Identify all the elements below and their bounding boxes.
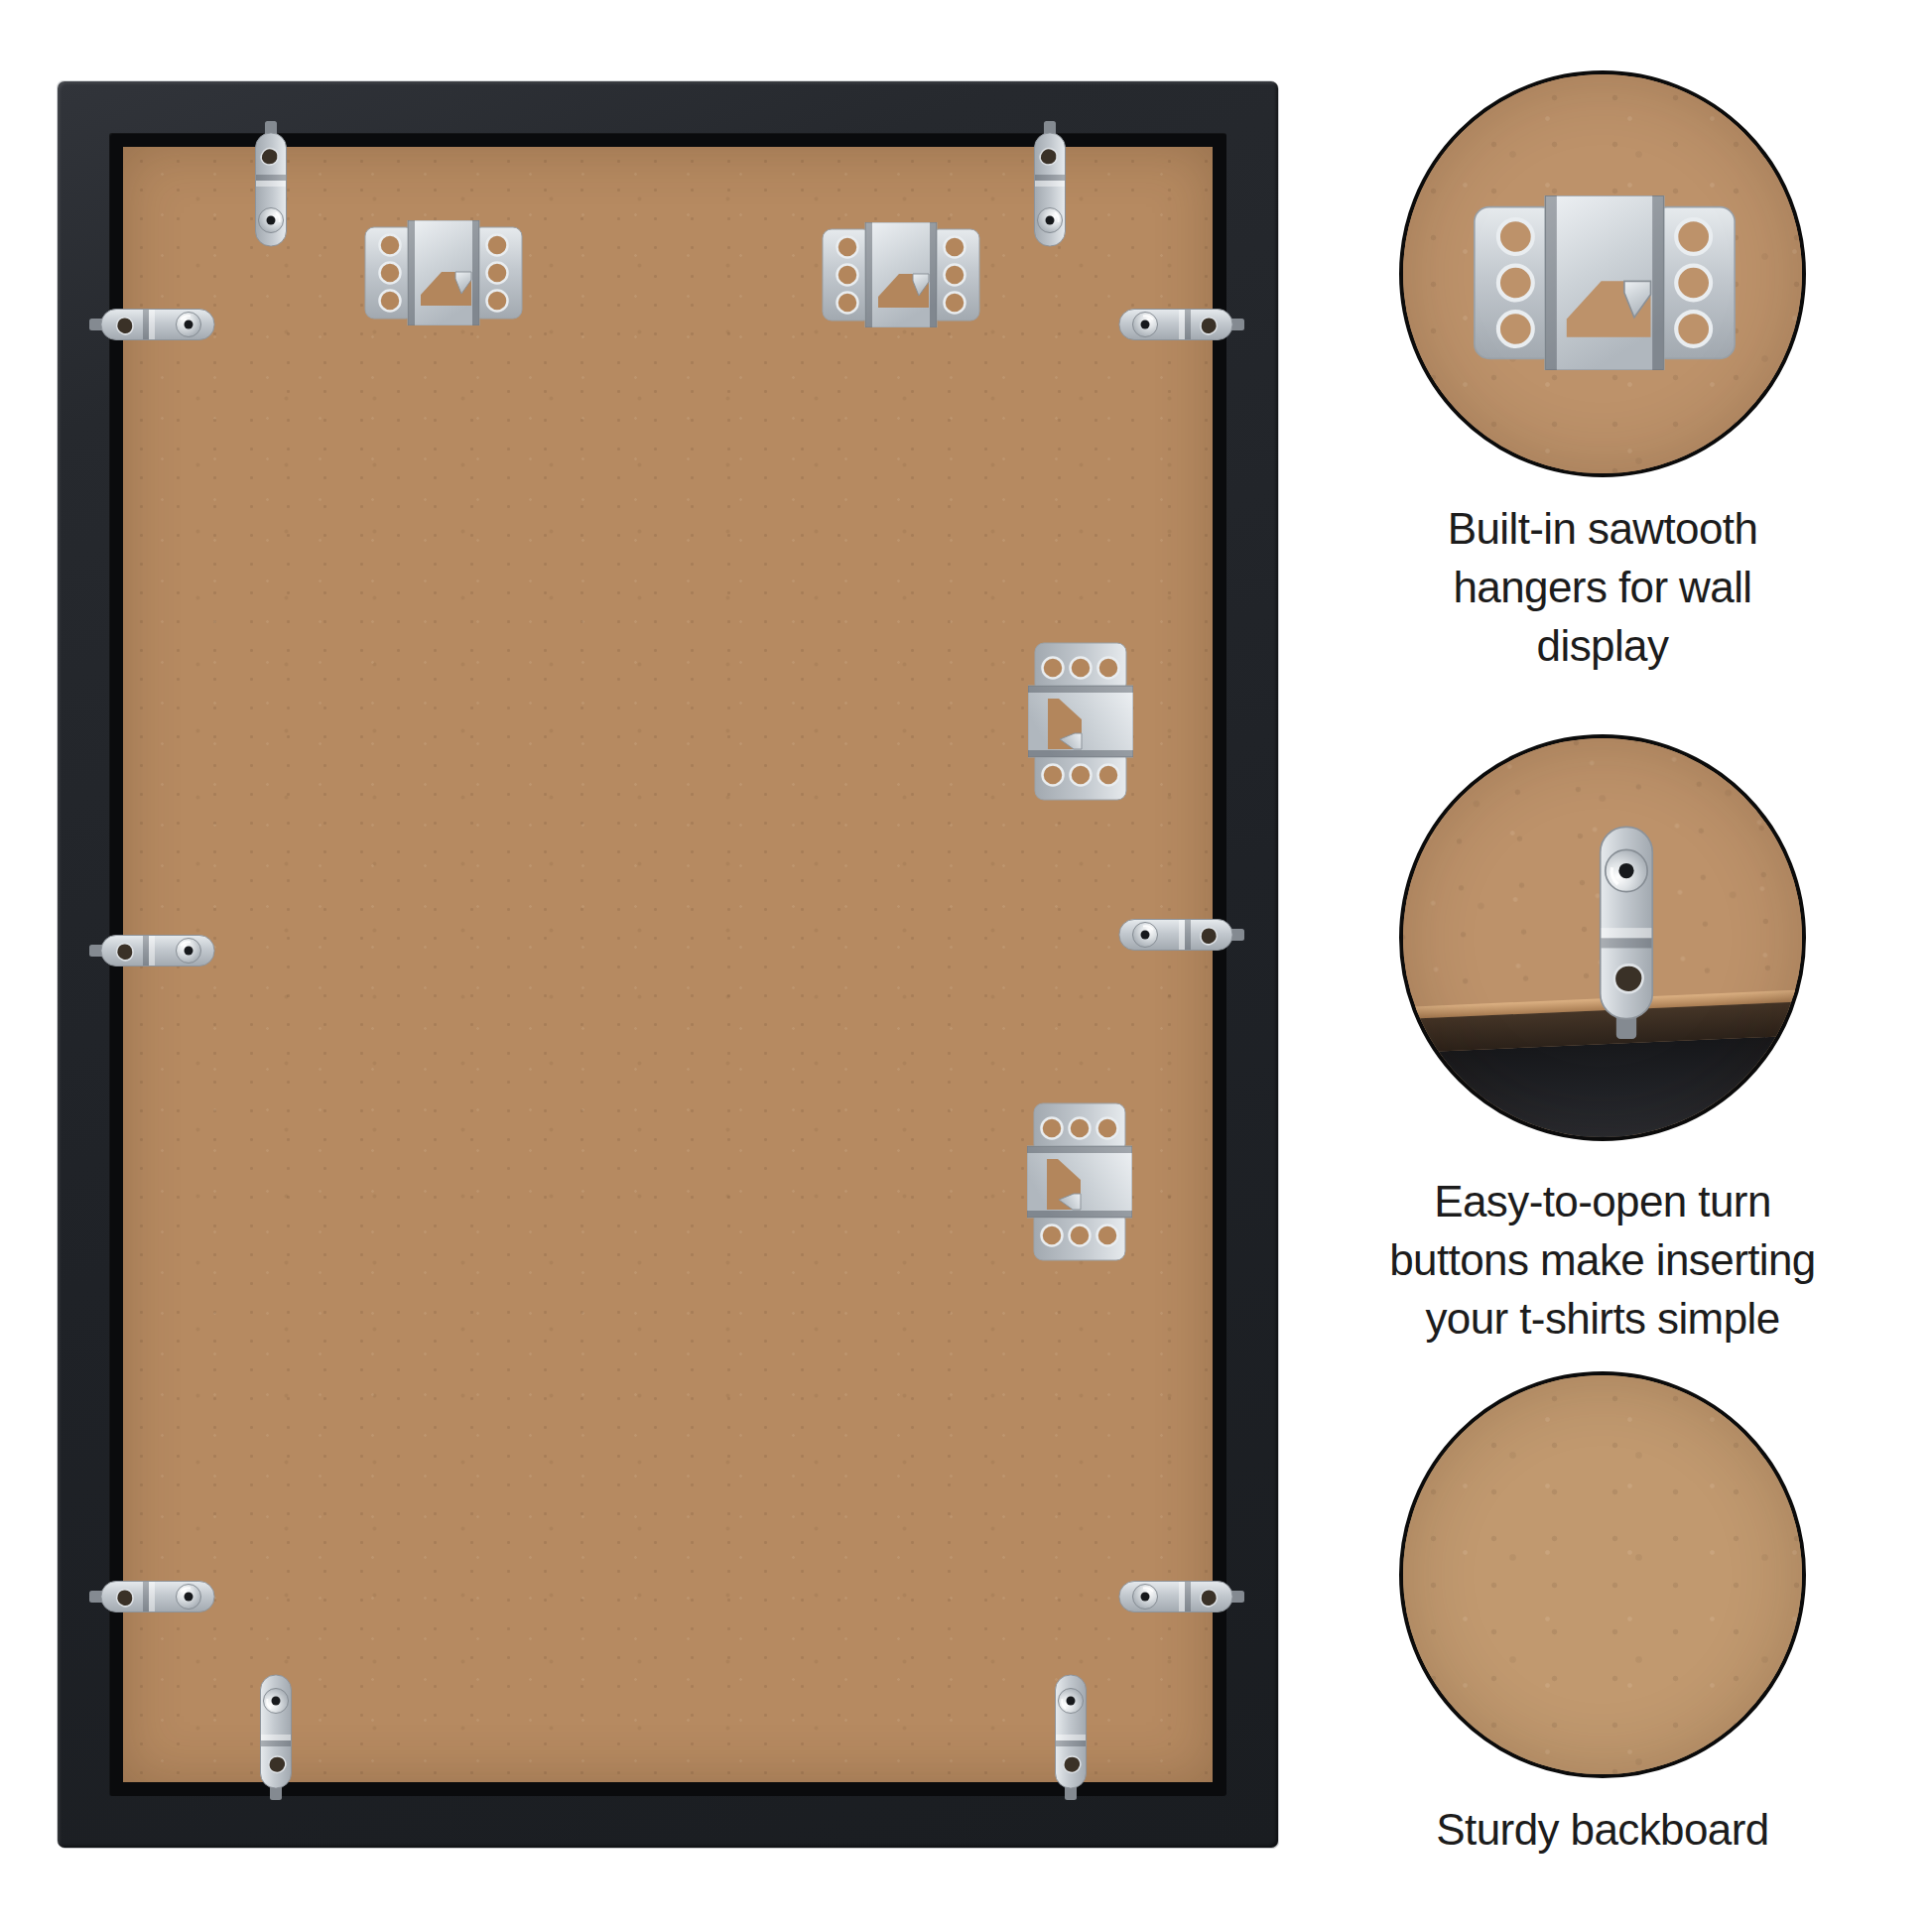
caption-line: Sturdy backboard (1345, 1800, 1861, 1859)
photo-vignette (1403, 738, 1802, 1137)
turn-button (253, 119, 289, 250)
frame-back-view (58, 81, 1278, 1848)
turn-button (1053, 1671, 1089, 1802)
caption-line: display (1345, 616, 1861, 675)
callout-caption: Sturdy backboard (1345, 1800, 1861, 1859)
mdf-backboard (123, 147, 1213, 1782)
caption-line: Built-in sawtooth (1345, 499, 1861, 558)
turn-button (87, 307, 218, 342)
callout-caption: Easy-to-open turn buttons make inserting… (1345, 1172, 1861, 1348)
caption-line: hangers for wall (1345, 558, 1861, 616)
photo-vignette (1403, 74, 1802, 473)
product-image: Built-in sawtooth hangers for wall displ… (0, 0, 1931, 1932)
turn-button (258, 1671, 294, 1802)
turn-button (1115, 307, 1246, 342)
sawtooth-hanger (1027, 1102, 1132, 1261)
caption-line: your t-shirts simple (1345, 1289, 1861, 1348)
backboard-closeup-photo (1399, 1371, 1806, 1778)
callout-caption: Built-in sawtooth hangers for wall displ… (1345, 499, 1861, 675)
sawtooth-hanger (822, 222, 980, 327)
turn-button (87, 1579, 218, 1614)
turn-button (1032, 119, 1068, 250)
sawtooth-closeup-photo (1399, 70, 1806, 477)
sawtooth-hanger (1028, 642, 1133, 801)
turn-button (1115, 917, 1246, 953)
photo-vignette (1403, 1375, 1802, 1774)
caption-line: buttons make inserting (1345, 1230, 1861, 1289)
turn-button (1115, 1579, 1246, 1614)
caption-line: Easy-to-open turn (1345, 1172, 1861, 1230)
sawtooth-hanger (364, 220, 523, 325)
turn-button-closeup-photo (1399, 734, 1806, 1141)
turn-button (87, 933, 218, 968)
